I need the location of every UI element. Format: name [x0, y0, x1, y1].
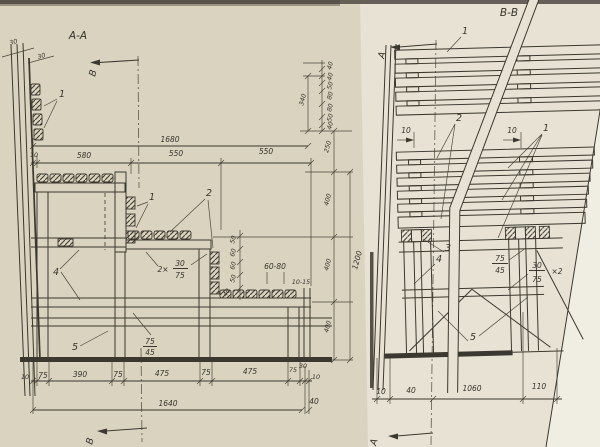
dim-text: 40: [406, 386, 416, 395]
multiplier: 2×: [157, 265, 168, 274]
dim-text: 75: [38, 371, 48, 380]
view-title-aa: А-А: [68, 30, 87, 42]
fraction-numerator: 75: [145, 337, 155, 346]
dim-550: 550: [169, 149, 184, 158]
dim-text: 10: [401, 126, 411, 135]
multiplier: ×2: [551, 267, 562, 276]
dim-1680: 1680: [160, 135, 179, 144]
dim-550: 550: [259, 147, 274, 156]
dim-text: 10: [312, 374, 320, 381]
part-label-4: 4: [53, 267, 59, 278]
part-label-2: 2: [456, 113, 462, 124]
dim-1640: 1640: [158, 399, 177, 408]
note-10-15: 10-15: [292, 279, 310, 286]
dim-text: 1060: [462, 384, 481, 393]
view-title-bb: В-В: [500, 7, 518, 19]
dim-580: 580: [77, 151, 92, 160]
fraction-denominator: 75: [532, 275, 542, 284]
part-label-5: 5: [470, 332, 476, 343]
part-label-1-right: 1: [543, 123, 549, 134]
floor-line: [20, 357, 332, 362]
fraction-denominator: 45: [145, 348, 155, 357]
dim-text: 390: [73, 370, 88, 379]
scan-edge-top-left: [0, 0, 340, 6]
dim-10: 10: [30, 152, 38, 159]
dim-40: 40: [309, 397, 319, 406]
technical-drawing: А-А 30 30 1 В В: [0, 0, 600, 447]
dim-text: 75: [201, 368, 211, 377]
part-label-1-slats: 1: [149, 192, 155, 203]
dim-text: 30: [299, 363, 307, 370]
dim-text: 10: [21, 374, 29, 381]
dim-text: 75: [289, 367, 297, 374]
dim-text: 475: [243, 367, 258, 376]
dim-text: 75: [113, 370, 123, 379]
fraction-numerator: 30: [175, 259, 185, 268]
part-label-3: 3: [445, 243, 451, 254]
fraction-numerator: 75: [495, 254, 505, 263]
fraction-numerator: 30: [532, 261, 542, 270]
part-label-4: 4: [436, 254, 442, 265]
part-label-5: 5: [72, 342, 78, 353]
note-60-80: 60-80: [264, 262, 286, 271]
fraction-denominator: 45: [495, 266, 505, 275]
dim-text: 10: [376, 387, 386, 396]
fraction-denominator: 75: [175, 271, 185, 280]
dim-text: 110: [532, 382, 547, 391]
dim-text: 475: [155, 369, 170, 378]
part-label-1-backrest: 1: [59, 89, 65, 100]
scanned-blueprint-page: А-А 30 30 1 В В: [0, 0, 600, 447]
part-label-1-top: 1: [462, 26, 468, 37]
dim-text: 10: [507, 126, 517, 135]
part-label-2: 2: [206, 188, 212, 199]
